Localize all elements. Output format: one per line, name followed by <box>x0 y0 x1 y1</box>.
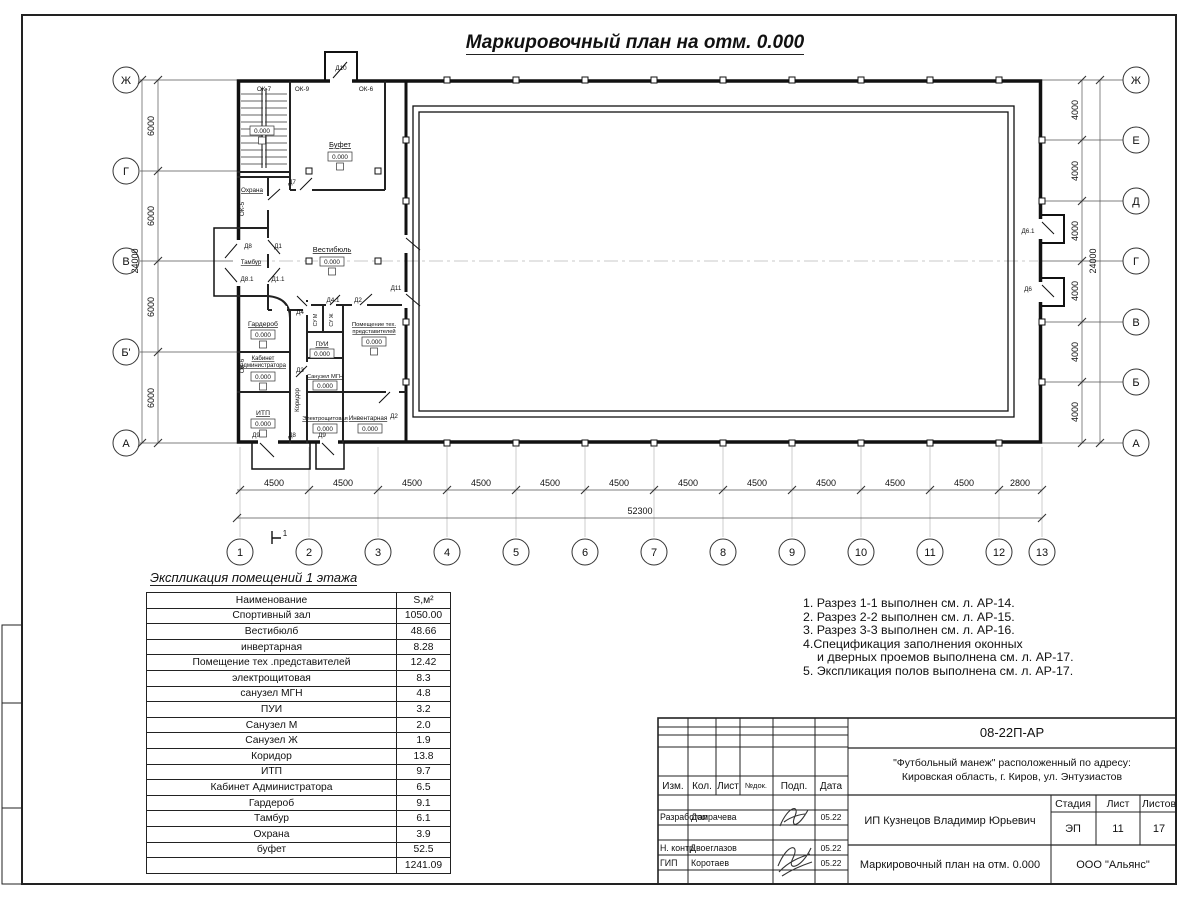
dim-label: 4500 <box>264 478 284 488</box>
room-area: 12.42 <box>397 655 451 671</box>
dim-label: 4000 <box>1070 342 1080 362</box>
date-value: 05.22 <box>821 843 842 853</box>
room-label: Кабинет <box>252 356 275 362</box>
dim-label: 4000 <box>1070 100 1080 120</box>
opening-label: Д10 <box>335 65 347 72</box>
project-address: Кировская область, г. Киров, ул. Энтузиа… <box>902 771 1123 783</box>
room-label: Тамбур <box>241 260 262 266</box>
table-row: Гардероб9.1 <box>147 795 451 811</box>
table-row: Тамбур6.1 <box>147 811 451 827</box>
axis-label: В <box>122 256 129 268</box>
room-label: Санузел МГН <box>307 374 343 380</box>
col-header: Лист <box>717 781 739 792</box>
opening-label: Д8.1 <box>240 276 254 283</box>
col-header-name: Наименование <box>147 593 397 609</box>
level-mark: 0.000 <box>366 339 382 346</box>
room-name: Тамбур <box>147 811 397 827</box>
client-name: ИП Кузнецов Владимир Юрьевич <box>864 815 1035 827</box>
room-label: Вестибюль <box>313 245 352 254</box>
drawing-title: Маркировочный план на отм. 0.000 <box>860 859 1040 871</box>
columns <box>306 77 1045 446</box>
section-mark: 1 <box>272 529 288 544</box>
table-row: Кабинет Администратора6.5 <box>147 780 451 796</box>
dim-label: 4500 <box>402 478 422 488</box>
grid-label: 12 <box>993 547 1005 559</box>
opening-label: ОК-6 <box>359 86 374 93</box>
table-row: ПУИ3.2 <box>147 702 451 718</box>
room-area: 3.2 <box>397 702 451 718</box>
opening-label: Д9 <box>318 432 326 439</box>
axis-label: В <box>1132 317 1139 329</box>
room-label: представителей <box>352 328 395 335</box>
dim-total-label: 24000 <box>1088 248 1098 273</box>
person-name: Двоеглазов <box>690 843 737 853</box>
room-area: 8.28 <box>397 639 451 655</box>
table-row: буфет52.5 <box>147 842 451 858</box>
room-area: 48.66 <box>397 624 451 640</box>
table-row: ИТП9.7 <box>147 764 451 780</box>
room-name: инвертарная <box>147 639 397 655</box>
axis-label: Б' <box>121 347 130 359</box>
room-schedule-table: НаименованиеS,м² Спортивный зал1050.00 В… <box>146 592 451 874</box>
opening-label: Д3 <box>296 367 304 374</box>
grid-label: 13 <box>1036 547 1048 559</box>
doc-number: 08-22П-АР <box>980 725 1044 740</box>
room-area: 8.3 <box>397 670 451 686</box>
room-name: Вестибюлб <box>147 624 397 640</box>
dim-label: 6000 <box>146 388 156 408</box>
opening-label: Д2 <box>390 413 398 420</box>
col-header: №док. <box>745 781 767 790</box>
level-mark: 0.000 <box>255 332 271 339</box>
signature-icon <box>778 809 812 876</box>
table-header-row: НаименованиеS,м² <box>147 593 451 609</box>
col-header: Изм. <box>662 781 683 792</box>
room-name: ПУИ <box>147 702 397 718</box>
grid-label: 4 <box>444 547 450 559</box>
table-row: санузел МГН4.8 <box>147 686 451 702</box>
table-row: Спортивный зал1050.00 <box>147 608 451 624</box>
dim-label: 6000 <box>146 206 156 226</box>
room-name: Помещение тех .представителей <box>147 655 397 671</box>
grid-label: 1 <box>237 547 243 559</box>
room-label: администратора <box>240 363 287 369</box>
dim-label: 4500 <box>540 478 560 488</box>
dim-label: 4000 <box>1070 402 1080 422</box>
room-label: ПУИ <box>315 341 329 348</box>
note-item: и дверных проемов выполнена см. л. АР-17… <box>803 651 1074 665</box>
dim-label: 6000 <box>146 297 156 317</box>
room-label: СУ Ж <box>329 313 335 326</box>
person-name: Домрачева <box>691 812 737 822</box>
opening-label: Д11 <box>391 285 402 292</box>
axis-label: Д <box>1132 196 1140 208</box>
table-row: Санузел Ж1.9 <box>147 733 451 749</box>
opening-label: ОК-7 <box>257 86 272 93</box>
opening-label: Д6.1 <box>1021 228 1035 235</box>
dim-label: 2800 <box>1010 478 1030 488</box>
table-row: Помещение тех .представителей12.42 <box>147 655 451 671</box>
dim-label: 4500 <box>816 478 836 488</box>
room-label: Гардероб <box>248 320 278 328</box>
opening-label: Д6 <box>1024 286 1032 293</box>
opening-label: Д7 <box>288 179 296 186</box>
room-area: 6.1 <box>397 811 451 827</box>
level-mark: 0.000 <box>317 383 333 390</box>
grid-label: 3 <box>375 547 381 559</box>
dim-label: 4500 <box>954 478 974 488</box>
level-mark: 0.000 <box>324 259 340 266</box>
note-item: 3. Разрез 3-3 выполнен см. л. АР-16. <box>803 624 1074 638</box>
note-item: 4.Спецификация заполнения оконных <box>803 638 1074 652</box>
opening-label: Д4 <box>296 309 304 316</box>
opening-labels: ОК-7 ОК-9 Д10 ОК-6 ОК-5 ОК-6 Д7 Д8 Д1 Д8… <box>239 65 1035 439</box>
notes-list: 1. Разрез 1-1 выполнен см. л. АР-14. 2. … <box>803 597 1074 679</box>
role-label: ГИП <box>660 858 677 868</box>
drawing-sheet: { "sheet": { "title": "Маркировочный пла… <box>0 0 1200 900</box>
room-name: электрощитовая <box>147 670 397 686</box>
room-area: 13.8 <box>397 748 451 764</box>
room-name: Коридор <box>147 748 397 764</box>
room-label: Охрана <box>241 187 263 194</box>
room-name: Охрана <box>147 826 397 842</box>
note-item: 2. Разрез 2-2 выполнен см. л. АР-15. <box>803 611 1074 625</box>
room-name: Гардероб <box>147 795 397 811</box>
room-label: ИТП <box>256 410 270 417</box>
stage-label: Стадия <box>1055 798 1091 810</box>
col-header: Дата <box>820 781 843 792</box>
opening-label: ОК-5 <box>239 201 246 216</box>
stage-value: ЭП <box>1065 823 1081 835</box>
note-item: 1. Разрез 1-1 выполнен см. л. АР-14. <box>803 597 1074 611</box>
person-name: Коротаев <box>691 858 729 868</box>
room-area: 6.5 <box>397 780 451 796</box>
room-area: 9.7 <box>397 764 451 780</box>
room-label: Буфет <box>329 140 352 149</box>
dim-label: 4500 <box>747 478 767 488</box>
level-mark: 0.000 <box>314 351 330 358</box>
table-row: электрощитовая8.3 <box>147 670 451 686</box>
grid-label: 7 <box>651 547 657 559</box>
room-name: Санузел М <box>147 717 397 733</box>
room-area: 4.8 <box>397 686 451 702</box>
level-mark: 0.000 <box>332 154 348 161</box>
table-row: инвертарная8.28 <box>147 639 451 655</box>
room-area: 9.1 <box>397 795 451 811</box>
opening-label: ОК-9 <box>295 86 310 93</box>
level-mark: 0.000 <box>255 374 271 381</box>
table-row: Охрана3.9 <box>147 826 451 842</box>
opening-label: Д8 <box>288 432 296 439</box>
level-mark: 0.000 <box>362 426 378 433</box>
dim-label: 4000 <box>1070 221 1080 241</box>
room-label: СУ М <box>313 314 319 327</box>
room-name: санузел МГН <box>147 686 397 702</box>
axis-label: Г <box>1133 256 1139 268</box>
dim-label: 4000 <box>1070 161 1080 181</box>
room-name: Кабинет Администратора <box>147 780 397 796</box>
room-name: Санузел Ж <box>147 733 397 749</box>
grid-label: 6 <box>582 547 588 559</box>
sheet-label: Лист <box>1107 798 1130 810</box>
axis-label: Б <box>1132 377 1139 389</box>
level-mark: 0.000 <box>254 128 270 135</box>
note-item: 5. Экспликация полов выполнена см. л. АР… <box>803 665 1074 679</box>
opening-label: Д1.1 <box>271 276 285 283</box>
axis-label: Г <box>123 166 129 178</box>
date-value: 05.22 <box>821 858 842 868</box>
opening-label: Д1 <box>274 243 282 250</box>
sheet-number: 11 <box>1112 823 1123 835</box>
door-leaves <box>225 62 1054 457</box>
total-area: 1241.09 <box>397 858 451 874</box>
dim-label: 4500 <box>471 478 491 488</box>
dim-label: 4500 <box>885 478 905 488</box>
sheets-total: 17 <box>1153 823 1165 835</box>
opening-label: Д4.1 <box>326 297 340 304</box>
col-header-area: S,м² <box>397 593 451 609</box>
opening-label: Д8 <box>244 243 252 250</box>
room-label: Электрощитовая <box>302 416 347 422</box>
dim-total-label: 52300 <box>627 506 652 516</box>
level-mark: 0.000 <box>255 421 271 428</box>
room-area: 1050.00 <box>397 608 451 624</box>
date-value: 05.22 <box>821 812 842 822</box>
room-area: 1.9 <box>397 733 451 749</box>
total-spacer <box>147 858 397 874</box>
col-header: Кол. <box>692 781 712 792</box>
axis-label: А <box>1132 438 1140 450</box>
grid-label: 11 <box>924 547 935 559</box>
room-name: ИТП <box>147 764 397 780</box>
opening-label: Д9 <box>252 432 260 439</box>
axis-label: Ж <box>1131 75 1141 87</box>
table-row: Вестибюлб48.66 <box>147 624 451 640</box>
schedule-title: Экспликация помещений 1 этажа <box>150 570 357 585</box>
dim-label: 6000 <box>146 116 156 136</box>
room-label: Инвентарная <box>349 415 387 422</box>
axis-label: Ж <box>121 75 131 87</box>
axis-label: Е <box>1132 135 1139 147</box>
axis-label: А <box>122 438 130 450</box>
room-name: Спортивный зал <box>147 608 397 624</box>
dim-label: 4500 <box>678 478 698 488</box>
grid-label: 5 <box>513 547 519 559</box>
room-area: 3.9 <box>397 826 451 842</box>
dim-label: 4500 <box>609 478 629 488</box>
opening-label: Д2 <box>354 297 362 304</box>
col-header: Подп. <box>781 781 808 792</box>
company-name: ООО "Альянс" <box>1076 859 1150 871</box>
dim-label: 4500 <box>333 478 353 488</box>
table-row: Санузел М2.0 <box>147 717 451 733</box>
room-area: 2.0 <box>397 717 451 733</box>
room-area: 52.5 <box>397 842 451 858</box>
table-row: Коридор13.8 <box>147 748 451 764</box>
dim-label: 4000 <box>1070 281 1080 301</box>
opening-label: ОК-6 <box>239 358 246 373</box>
project-name: "Футбольный манеж" расположенный по адре… <box>893 757 1131 769</box>
room-label: Коридор <box>295 387 301 411</box>
grid-label: 8 <box>720 547 726 559</box>
grid-label: 2 <box>306 547 312 559</box>
sheets-label: Листов <box>1142 798 1177 810</box>
section-mark-label: 1 <box>283 529 288 538</box>
room-label: Помещение тех. <box>352 322 396 328</box>
grid-label: 10 <box>855 547 867 559</box>
table-total-row: 1241.09 <box>147 858 451 874</box>
room-name: буфет <box>147 842 397 858</box>
grid-label: 9 <box>789 547 795 559</box>
